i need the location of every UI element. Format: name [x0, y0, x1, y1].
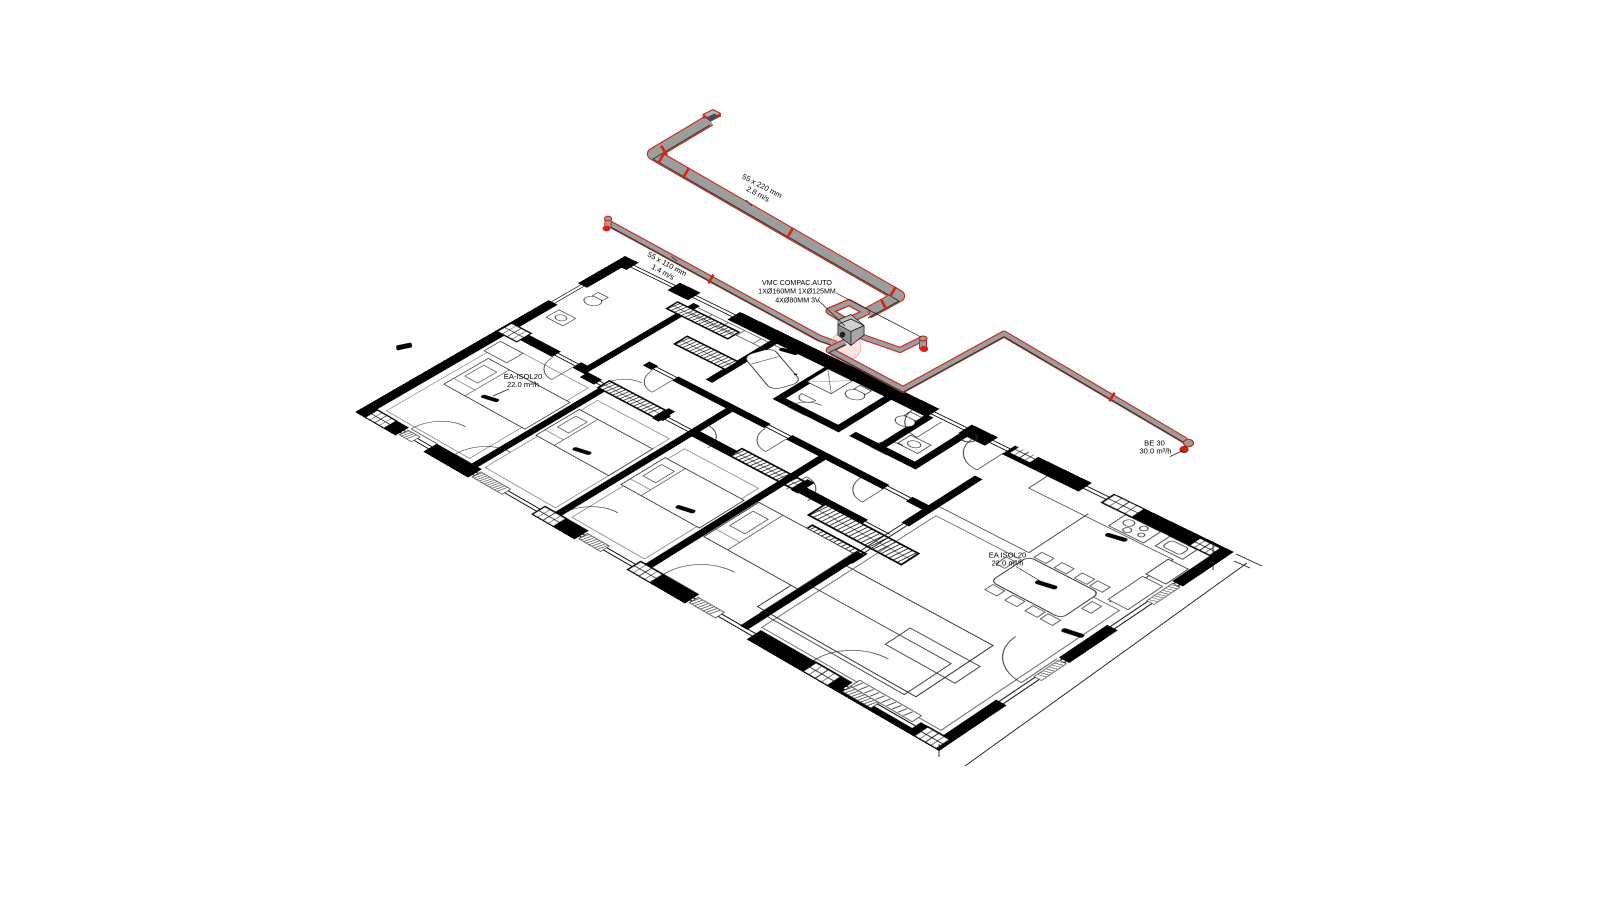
svg-text:22.0 m³/h: 22.0 m³/h: [507, 380, 539, 389]
svg-text:30.0 m³/h: 30.0 m³/h: [1139, 447, 1171, 456]
svg-text:VMC COMPAC.AUTO: VMC COMPAC.AUTO: [762, 279, 832, 287]
svg-text:4XØ80MM 3V: 4XØ80MM 3V: [775, 296, 820, 304]
svg-text:1XØ160MM 1XØ125MM: 1XØ160MM 1XØ125MM: [758, 288, 836, 296]
svg-text:22.0 m³/h: 22.0 m³/h: [991, 559, 1023, 568]
